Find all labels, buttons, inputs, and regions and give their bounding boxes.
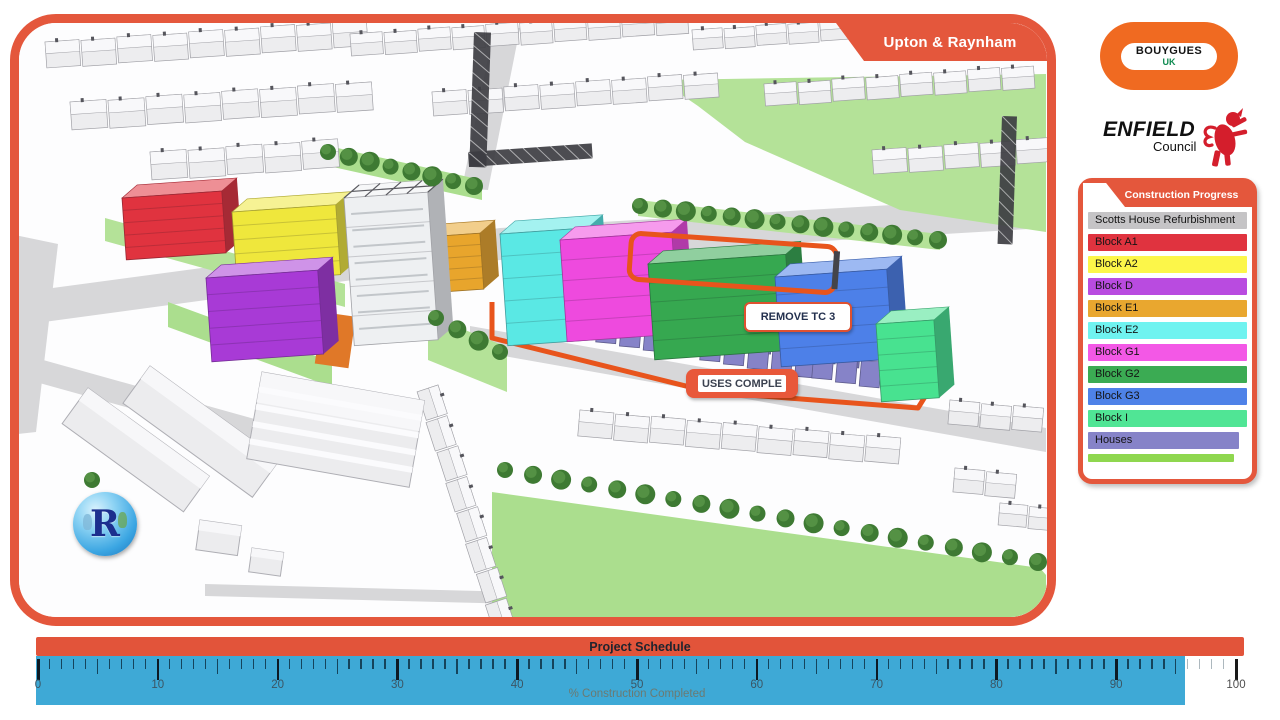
block-e1: [425, 220, 500, 293]
green-space: [315, 143, 482, 200]
tower-crane: [469, 32, 491, 168]
green-space: [492, 492, 1046, 617]
context-housing-row: [45, 17, 368, 69]
ruler-minor-tick: [73, 659, 74, 669]
ruler-minor-tick: [205, 659, 206, 669]
ruler-minor-tick: [456, 659, 457, 674]
context-housing-row: [764, 62, 1035, 107]
legend-header: Construction Progress: [1083, 183, 1252, 207]
highlight-outline: [629, 233, 838, 293]
green-space: [660, 74, 1046, 232]
page: { "map_panel": { "title": "Upton & Raynh…: [0, 0, 1280, 720]
context-housing-row: [70, 78, 373, 131]
legend-rows: Scotts House RefurbishmentBlock A1Block …: [1083, 207, 1252, 462]
green-space: [105, 218, 345, 307]
tree-line: [632, 198, 947, 249]
enfield-council-logo: ENFIELD Council: [1103, 118, 1255, 170]
ruler-tick-label: 10: [151, 679, 164, 691]
context-housing-row: [150, 136, 340, 181]
ruler-minor-tick: [624, 659, 625, 669]
ruler-minor-tick: [348, 659, 349, 669]
new-houses-cluster: [811, 342, 908, 392]
ruler-minor-tick: [337, 659, 338, 674]
road: [10, 348, 330, 464]
road: [10, 232, 58, 436]
ruler-minor-tick: [253, 659, 254, 669]
ruler-major-tick: [1235, 659, 1238, 680]
map-ground: [10, 14, 1056, 626]
ruler-minor-tick: [912, 659, 913, 669]
ruler-minor-tick: [241, 659, 242, 669]
block-g1: [559, 219, 695, 342]
ruler-major-tick: [995, 659, 998, 680]
ruler-major-tick: [756, 659, 759, 680]
ruler-minor-tick: [133, 659, 134, 669]
ruler-minor-tick: [109, 659, 110, 669]
context-housing-row: [416, 384, 519, 626]
legend-item-extra: [1088, 454, 1234, 462]
ruler-minor-tick: [828, 659, 829, 669]
ruler-minor-tick: [193, 659, 194, 669]
legend-item-block-a2: Block A2: [1088, 256, 1247, 273]
ruler-minor-tick: [684, 659, 685, 669]
ruler-major-tick: [516, 659, 519, 680]
ruler-minor-tick: [1223, 659, 1224, 669]
ruler-minor-tick: [1151, 659, 1152, 669]
ruler-tick-label: 0: [35, 679, 41, 691]
site-map-panel: Upton & Raynham: [10, 14, 1056, 626]
ruler-minor-tick: [840, 659, 841, 669]
ruler-minor-tick: [660, 659, 661, 669]
tower-crane: [998, 116, 1017, 244]
ruler-minor-tick: [959, 659, 960, 669]
ruler-minor-tick: [924, 659, 925, 669]
ruler-minor-tick: [480, 659, 481, 669]
ruler-minor-tick: [732, 659, 733, 669]
ruler-minor-tick: [576, 659, 577, 674]
project-schedule-bar: Project Schedule: [36, 637, 1244, 656]
ruler-minor-tick: [720, 659, 721, 669]
child-figure-icon: [118, 512, 127, 528]
map-title: Upton & Raynham: [883, 34, 1016, 51]
ruler-minor-tick: [1139, 659, 1140, 669]
ruler-minor-tick: [1079, 659, 1080, 669]
callout-remove-tc3-label: REMOVE TC 3: [761, 311, 836, 323]
ruler-minor-tick: [265, 659, 266, 669]
ruler-tick-label: 20: [271, 679, 284, 691]
ruler-minor-tick: [325, 659, 326, 669]
ruler-minor-tick: [444, 659, 445, 669]
callout-houses-complete: USES COMPLE: [686, 369, 798, 398]
context-housing-row: [872, 135, 1052, 175]
ruler-minor-tick: [1199, 659, 1200, 669]
ruler-minor-tick: [145, 659, 146, 669]
ruler-minor-tick: [888, 659, 889, 669]
ruler-minor-tick: [708, 659, 709, 669]
ruler-minor-tick: [864, 659, 865, 669]
ruler-major-tick: [636, 659, 639, 680]
ruler-minor-tick: [648, 659, 649, 669]
ruler-minor-tick: [468, 659, 469, 669]
ruler-major-tick: [37, 659, 40, 680]
ruler-minor-tick: [588, 659, 589, 669]
ruler-tick-label: 100: [1226, 679, 1245, 691]
ruler-minor-tick: [1163, 659, 1164, 669]
green-space: [428, 315, 507, 392]
ruler-minor-tick: [564, 659, 565, 669]
ruler-minor-tick: [900, 659, 901, 669]
ruler-minor-tick: [816, 659, 817, 674]
ruler-minor-tick: [408, 659, 409, 669]
project-schedule-title: Project Schedule: [589, 640, 690, 654]
ruler-minor-tick: [983, 659, 984, 669]
ruler-minor-tick: [792, 659, 793, 669]
bouygues-logo-pill: BOUYGUES UK: [1121, 43, 1217, 70]
block-a1: [121, 178, 242, 260]
ruler-minor-tick: [420, 659, 421, 669]
ruler-minor-tick: [780, 659, 781, 669]
ruler-minor-tick: [528, 659, 529, 669]
new-houses-cluster: [595, 306, 692, 356]
context-housing-row: [953, 465, 1017, 498]
ruler-minor-tick: [372, 659, 373, 669]
ruler-minor-tick: [49, 659, 50, 669]
callout-houses-complete-label: USES COMPLE: [698, 375, 786, 392]
ruler-minor-tick: [432, 659, 433, 669]
block-g2: [647, 241, 808, 359]
ruler-minor-tick: [1031, 659, 1032, 669]
block-i: [875, 307, 955, 402]
legend-item-block-g1: Block G1: [1088, 344, 1247, 361]
bouygues-uk-label: UK: [1163, 58, 1176, 67]
ruler-minor-tick: [61, 659, 62, 669]
ruler-tick-label: 50: [631, 679, 644, 691]
legend-item-block-g3: Block G3: [1088, 388, 1247, 405]
schedule-ruler: % Construction Completed 010203040506070…: [36, 656, 1250, 705]
ruler-minor-tick: [947, 659, 948, 669]
block-e2: [499, 215, 611, 346]
ruler-minor-tick: [97, 659, 98, 674]
ruler-minor-tick: [121, 659, 122, 669]
ruler-minor-tick: [1103, 659, 1104, 669]
tower-crane: [468, 143, 593, 167]
ruler-minor-tick: [1127, 659, 1128, 669]
tree-line: [428, 310, 508, 360]
ruler-minor-tick: [1007, 659, 1008, 669]
legend-item-block-e2: Block E2: [1088, 322, 1247, 339]
ruler-minor-tick: [1067, 659, 1068, 669]
ruler-minor-tick: [181, 659, 182, 669]
ruler-tick-label: 80: [990, 679, 1003, 691]
ruler-minor-tick: [313, 659, 314, 669]
ruler-tick-label: 90: [1110, 679, 1123, 691]
ruler-minor-tick: [540, 659, 541, 669]
legend-item-block-e1: Block E1: [1088, 300, 1247, 317]
callout-remove-tc3: REMOVE TC 3: [744, 302, 852, 332]
scotts-house-tower: [343, 179, 454, 346]
ruler-minor-tick: [1187, 659, 1188, 669]
ruler-minor-tick: [768, 659, 769, 669]
ruler-minor-tick: [169, 659, 170, 669]
context-housing-row: [998, 500, 1056, 531]
ruler-minor-tick: [600, 659, 601, 669]
ruler-major-tick: [277, 659, 280, 680]
school-badge-letter: R: [90, 506, 120, 542]
context-building: [249, 548, 284, 576]
road: [205, 584, 520, 604]
ruler-minor-tick: [804, 659, 805, 669]
ruler-minor-tick: [1019, 659, 1020, 669]
enfield-lion-crest-icon: [1195, 106, 1253, 168]
context-building: [123, 366, 279, 497]
ruler-minor-tick: [360, 659, 361, 669]
site-map-3d-scene: [10, 14, 1056, 626]
context-building: [247, 372, 425, 487]
construction-progress-legend: Construction Progress Scotts House Refur…: [1078, 178, 1257, 484]
green-space: [638, 200, 940, 250]
ruler-minor-tick: [612, 659, 613, 669]
ruler-minor-tick: [971, 659, 972, 669]
ruler-minor-tick: [504, 659, 505, 669]
legend-item-block-g2: Block G2: [1088, 366, 1247, 383]
ruler-minor-tick: [492, 659, 493, 669]
road: [462, 28, 520, 190]
road: [10, 196, 1046, 328]
context-housing-row: [350, 14, 689, 57]
bouygues-wordmark: BOUYGUES: [1136, 46, 1202, 57]
tree-line: [497, 462, 1047, 571]
ruler-tick-label: 40: [511, 679, 524, 691]
ruler-major-tick: [157, 659, 160, 680]
context-housing-row: [432, 69, 719, 117]
legend-item-block-i: Block I: [1088, 410, 1247, 427]
ruler-minor-tick: [696, 659, 697, 674]
context-building: [196, 520, 242, 556]
ruler-tick-label: 30: [391, 679, 404, 691]
legend-item-block-a1: Block A1: [1088, 234, 1247, 251]
green-space: [168, 302, 332, 387]
ruler-minor-tick: [301, 659, 302, 669]
block-a2: [231, 192, 356, 282]
ruler-minor-tick: [744, 659, 745, 669]
courtyard: [315, 312, 356, 368]
ruler-minor-tick: [1055, 659, 1056, 674]
tree-line: [320, 144, 483, 195]
ruler-minor-tick: [384, 659, 385, 669]
ruler-minor-tick: [217, 659, 218, 674]
ruler-minor-tick: [852, 659, 853, 669]
context-housing-row: [578, 407, 901, 465]
ruler-minor-tick: [1175, 659, 1176, 674]
child-figure-icon: [83, 514, 92, 530]
ruler-tick-label: 70: [870, 679, 883, 691]
ruler-minor-tick: [936, 659, 937, 674]
block-d: [205, 257, 339, 362]
ruler-minor-tick: [1211, 659, 1212, 669]
legend-item-scotts-house-refurbishment: Scotts House Refurbishment: [1088, 212, 1247, 229]
bouygues-uk-logo: BOUYGUES UK: [1100, 22, 1238, 90]
ruler-major-tick: [1115, 659, 1118, 680]
school-badge: R: [73, 492, 137, 556]
ruler-minor-tick: [552, 659, 553, 669]
context-housing-row: [948, 397, 1044, 433]
ruler-minor-tick: [672, 659, 673, 669]
ruler-minor-tick: [1043, 659, 1044, 669]
legend-item-block-d: Block D: [1088, 278, 1247, 295]
ruler-minor-tick: [85, 659, 86, 669]
map-title-tab: Upton & Raynham: [836, 23, 1048, 61]
ruler-major-tick: [396, 659, 399, 680]
context-building: [62, 388, 209, 512]
ruler-minor-tick: [1091, 659, 1092, 669]
ruler-tick-label: 60: [750, 679, 763, 691]
ruler-major-tick: [876, 659, 879, 680]
ruler-minor-tick: [229, 659, 230, 669]
ruler-minor-tick: [289, 659, 290, 669]
legend-item-houses: Houses: [1088, 432, 1239, 449]
